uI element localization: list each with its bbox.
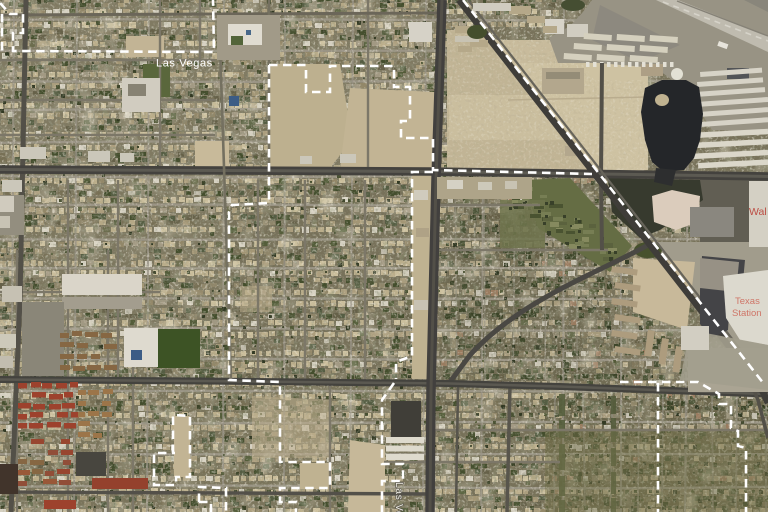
svg-text:Wal: Wal [749, 206, 767, 218]
svg-text:Texas: Texas [735, 296, 760, 307]
svg-text:Las Vegas: Las Vegas [393, 482, 404, 512]
svg-text:Las Vegas: Las Vegas [156, 58, 213, 70]
svg-text:Station: Station [732, 308, 762, 319]
